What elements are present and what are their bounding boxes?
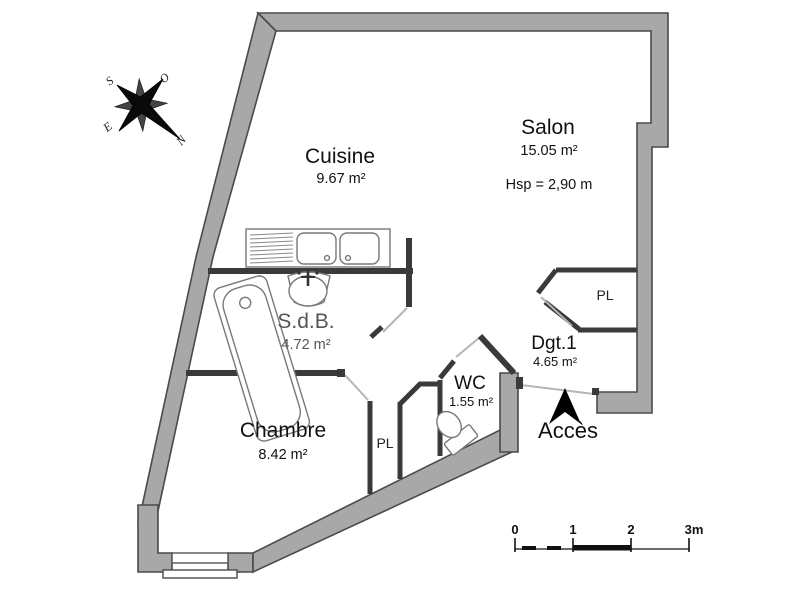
- wall-bottom-left-corner: [138, 505, 172, 572]
- window-glazing: [172, 553, 228, 563]
- wall-top-right: [258, 13, 668, 413]
- room-label-dgt: Dgt.1: [531, 333, 576, 354]
- chambre-door-leaf: [344, 374, 368, 400]
- sink-drain-left: [325, 256, 330, 261]
- chambre-door-stub: [337, 369, 345, 377]
- wall-window-right-block: [228, 553, 253, 572]
- wc-door-leaf: [456, 338, 479, 357]
- wall-entry-pier: [500, 373, 518, 452]
- room-label-wc: WC: [454, 373, 486, 394]
- floor-plan-page: S O E N Cuisine 9.67 m² Salon 15.05 m² H…: [0, 0, 800, 600]
- room-label-cuisine: Cuisine: [305, 145, 375, 168]
- entry-door-stub-left: [516, 377, 523, 389]
- wall-wc-ne: [480, 336, 514, 373]
- compass-south-label: S: [103, 73, 116, 88]
- compass-rose-icon: S O E N: [100, 70, 190, 149]
- sink-drain-right: [346, 256, 351, 261]
- washbasin-icon: [288, 270, 330, 306]
- window-sill: [163, 570, 237, 578]
- room-label-salon: Salon: [521, 116, 575, 139]
- scale-bar: 0 1 2 3m: [511, 522, 703, 552]
- scale-label-3m: 3m: [685, 522, 704, 537]
- room-area-chambre: 8.42 m²: [258, 447, 307, 463]
- sdb-door-leaf: [383, 308, 407, 332]
- entry-door: [516, 377, 599, 395]
- wall-pl-salon-nw: [538, 270, 556, 293]
- scale-label-1: 1: [569, 522, 576, 537]
- wall-wc-nw-stub: [440, 361, 454, 378]
- closet-label-salon: PL: [596, 287, 613, 303]
- kitchen-sink-icon: [246, 229, 390, 267]
- room-area-dgt: 4.65 m²: [533, 354, 578, 369]
- floor-plan-canvas: S O E N Cuisine 9.67 m² Salon 15.05 m² H…: [0, 0, 800, 600]
- scale-label-2: 2: [627, 522, 634, 537]
- sdb-door-stub: [371, 327, 382, 337]
- room-label-sdb: S.d.B.: [277, 310, 334, 333]
- wall-pl-chambre-top: [400, 384, 438, 404]
- room-area-wc: 1.55 m²: [449, 394, 494, 409]
- window-chambre: [163, 553, 237, 578]
- room-area-sdb: 4.72 m²: [281, 337, 330, 353]
- closet-label-chambre: PL: [376, 435, 393, 451]
- scale-dash-2: [547, 546, 561, 550]
- scale-solid-segment: [573, 545, 631, 551]
- room-area-salon: 15.05 m²: [520, 143, 577, 159]
- scale-label-0: 0: [511, 522, 518, 537]
- entry-door-leaf: [521, 385, 594, 394]
- room-label-chambre: Chambre: [240, 419, 326, 442]
- entry-door-stub-right: [592, 388, 599, 395]
- compass-east-label: E: [100, 119, 116, 136]
- room-note-salon-hsp: Hsp = 2,90 m: [506, 177, 593, 193]
- scale-dash-1: [522, 546, 536, 550]
- entrance-label: Accès: [538, 418, 598, 443]
- pl-salon-door-leaf: [541, 297, 572, 326]
- sink-basin-left: [297, 233, 336, 264]
- room-area-cuisine: 9.67 m²: [316, 171, 365, 187]
